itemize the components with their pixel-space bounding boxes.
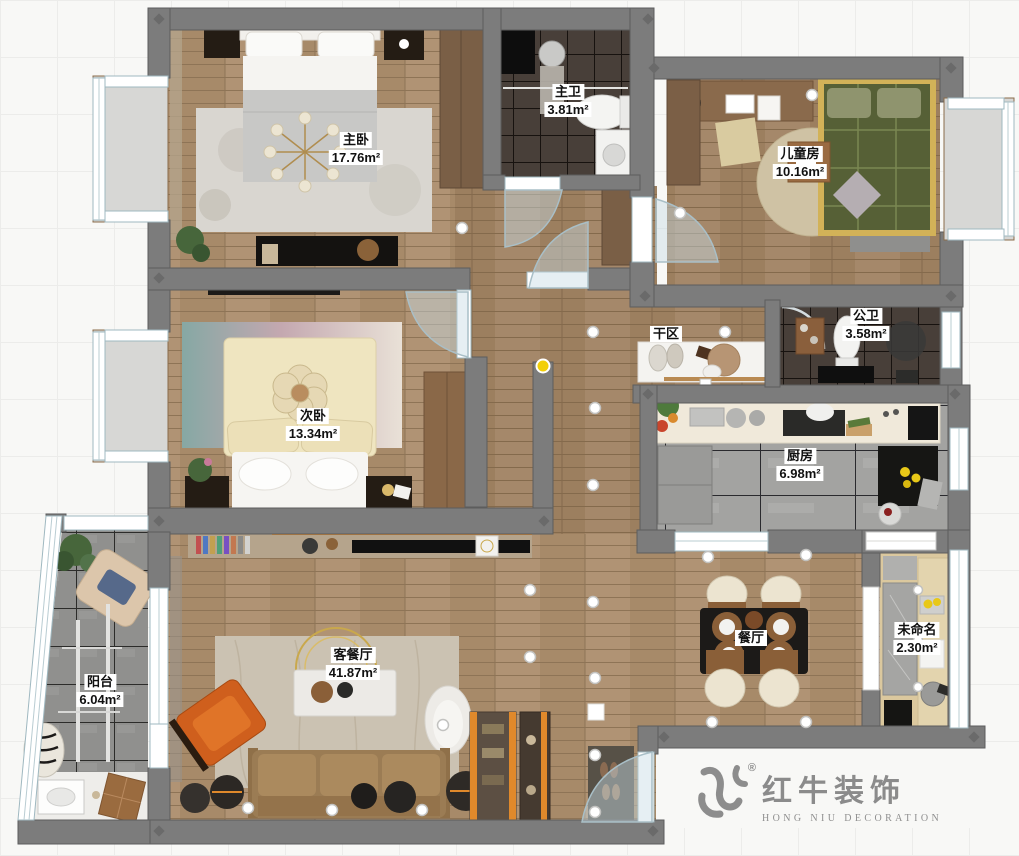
decor-box — [476, 536, 498, 556]
shelf-item — [482, 748, 504, 758]
kids-wardrobe[interactable] — [667, 80, 700, 185]
tray — [311, 681, 333, 703]
cabinet-accent — [541, 712, 547, 822]
lemon — [924, 600, 933, 609]
wall[interactable] — [637, 530, 675, 553]
wall[interactable] — [483, 175, 505, 190]
wall[interactable] — [645, 285, 963, 307]
wall[interactable] — [533, 362, 553, 509]
decor — [302, 538, 318, 554]
room-area: 41.87m² — [326, 665, 380, 681]
pantry-slide-door[interactable] — [863, 587, 879, 690]
wall[interactable] — [18, 820, 150, 844]
wall[interactable] — [148, 8, 652, 30]
nightstand[interactable] — [185, 476, 229, 512]
stool — [703, 365, 721, 379]
pillow-white — [239, 458, 291, 490]
bed-sheet[interactable] — [243, 56, 377, 92]
room-label-kitchen[interactable]: 厨房 6.98m² — [776, 448, 823, 483]
room-label-dining[interactable]: 餐厅 — [735, 630, 767, 648]
room-name: 次卧 — [297, 408, 329, 424]
cabinet-accent — [470, 712, 477, 822]
pillow-white — [306, 458, 358, 490]
room-name: 阳台 — [84, 674, 116, 690]
room-label-master-bathroom[interactable]: 主卫 3.81m² — [544, 84, 591, 119]
room-name: 公卫 — [850, 308, 882, 324]
room-label-public-bathroom[interactable]: 公卫 3.58m² — [842, 308, 889, 343]
shelf-item — [526, 735, 536, 745]
papers — [726, 95, 754, 113]
furniture-dry-area[interactable] — [638, 342, 768, 387]
rug-pattern — [199, 189, 231, 221]
bay-window-second[interactable] — [93, 330, 168, 462]
room-name: 厨房 — [784, 448, 816, 464]
shower-shelf — [796, 318, 824, 354]
stool — [351, 783, 377, 809]
plant-pot — [896, 370, 918, 383]
lemon — [903, 480, 911, 488]
spice — [883, 411, 889, 417]
wall[interactable] — [483, 8, 501, 190]
cabinet — [884, 700, 912, 726]
wall[interactable] — [640, 385, 657, 532]
plant — [192, 244, 210, 262]
cup — [399, 39, 409, 49]
wall[interactable] — [148, 268, 470, 290]
bottle — [810, 336, 818, 344]
decor — [326, 538, 338, 550]
wall[interactable] — [630, 262, 654, 307]
wall[interactable] — [148, 820, 664, 844]
shelf-item — [482, 775, 504, 785]
room-label-unnamed[interactable]: 未命名 2.30m² — [893, 622, 940, 657]
highlight-dot[interactable] — [537, 360, 550, 373]
wall[interactable] — [465, 357, 487, 507]
room-label-living-dining[interactable]: 客餐厅 41.87m² — [326, 647, 380, 682]
bay-window-kids[interactable] — [944, 98, 1014, 240]
jar — [649, 345, 667, 371]
flower — [204, 458, 212, 466]
kitchen-appliance[interactable] — [908, 406, 938, 440]
pillow — [318, 32, 374, 58]
door-frame — [505, 177, 560, 190]
bath-cabinet[interactable] — [501, 28, 535, 74]
plate — [773, 619, 789, 635]
registered-mark: ® — [748, 762, 756, 774]
window[interactable] — [150, 724, 168, 768]
bench — [850, 236, 930, 252]
sofa-cushion — [258, 754, 316, 796]
room-label-dry-area[interactable]: 干区 — [650, 326, 682, 344]
curtain — [170, 556, 182, 782]
counter-marble — [883, 556, 917, 580]
room-area: 17.76m² — [329, 150, 383, 166]
stool — [357, 239, 379, 261]
play-mat — [715, 117, 761, 166]
door-frame — [632, 197, 652, 262]
wall[interactable] — [768, 530, 864, 553]
wall[interactable] — [633, 385, 962, 403]
wall[interactable] — [645, 57, 963, 79]
dining-chair[interactable] — [759, 669, 799, 707]
pillow — [827, 88, 871, 118]
bull-logo-icon: ® — [692, 760, 754, 824]
room-area: 6.04m² — [76, 692, 123, 708]
sink-basin — [806, 403, 834, 421]
wall[interactable] — [653, 726, 985, 748]
room-area: 10.16m² — [773, 164, 827, 180]
dining-chair[interactable] — [705, 669, 745, 707]
room-name: 主卧 — [340, 132, 372, 148]
decor-square — [588, 704, 604, 720]
room-area: 13.34m² — [286, 426, 340, 442]
nightstand[interactable] — [204, 28, 240, 58]
lemon — [933, 598, 941, 606]
room-name: 主卫 — [552, 84, 584, 100]
plate — [337, 682, 353, 698]
toilet-tank — [620, 96, 630, 128]
jar — [667, 344, 683, 368]
wall[interactable] — [148, 508, 553, 534]
floor-plan-canvas[interactable] — [0, 0, 1019, 856]
wall[interactable] — [148, 768, 170, 820]
watermark: ® 红牛装饰 HONG NIU DECORATION — [692, 760, 942, 824]
wall[interactable] — [765, 300, 780, 387]
shelf-item — [482, 724, 504, 734]
basin-bowl — [47, 788, 75, 806]
floor-plan-stage: 主卧 17.76m² 主卫 3.81m² 儿童房 10.16m² 公卫 3.58… — [0, 0, 1019, 856]
cabinet-accent — [509, 712, 516, 822]
room-name: 干区 — [650, 326, 682, 342]
sink[interactable] — [539, 41, 565, 67]
pillow — [246, 32, 302, 58]
berries — [884, 508, 892, 516]
wall[interactable] — [560, 175, 640, 190]
room-name: 儿童房 — [777, 146, 822, 162]
lemon — [912, 474, 921, 483]
room-label-second-bedroom[interactable]: 次卧 13.34m² — [286, 408, 340, 443]
dish-rack — [690, 408, 724, 426]
room-area: 2.30m² — [893, 640, 940, 656]
lemon — [900, 467, 910, 477]
watermark-brand-en: HONG NIU DECORATION — [762, 813, 942, 824]
side-table — [180, 783, 210, 813]
room-area: 6.98m² — [776, 466, 823, 482]
stool — [384, 781, 416, 813]
orange-fruit — [668, 413, 678, 423]
spice — [893, 409, 899, 415]
room-area: 3.58m² — [842, 326, 889, 342]
wall[interactable] — [862, 553, 880, 587]
room-name: 客餐厅 — [330, 647, 375, 663]
hall-cabinet[interactable] — [602, 187, 633, 265]
room-label-master-bedroom[interactable]: 主卧 17.76m² — [329, 132, 383, 167]
papers — [758, 96, 780, 120]
room-label-balcony[interactable]: 阳台 6.04m² — [76, 674, 123, 709]
bay-window-master[interactable] — [93, 76, 168, 222]
tv[interactable] — [352, 540, 530, 553]
tomato — [656, 420, 668, 432]
vanity-counter[interactable] — [818, 366, 874, 383]
wall[interactable] — [638, 726, 658, 754]
room-label-kids-room[interactable]: 儿童房 10.16m² — [773, 146, 827, 181]
shelf-item — [526, 785, 536, 795]
pot — [749, 410, 765, 426]
lamp — [382, 484, 394, 496]
room-area: 3.81m² — [544, 102, 591, 118]
washer-door — [603, 144, 625, 166]
plate — [719, 619, 735, 635]
room-name: 餐厅 — [735, 630, 767, 646]
bottle — [800, 324, 808, 332]
room-name: 未命名 — [894, 622, 939, 638]
pot — [726, 408, 746, 428]
pot — [745, 611, 763, 629]
wall[interactable] — [630, 8, 654, 198]
wall[interactable] — [148, 532, 170, 590]
decor — [92, 791, 100, 799]
pillow — [877, 88, 921, 118]
dark-plant — [886, 321, 926, 361]
photo-frame — [262, 244, 278, 264]
watermark-brand: 红牛装饰 — [762, 766, 942, 810]
window[interactable] — [64, 516, 148, 530]
curtain-rail — [208, 290, 340, 295]
wood-ledge — [664, 377, 768, 381]
curtain — [170, 30, 182, 240]
